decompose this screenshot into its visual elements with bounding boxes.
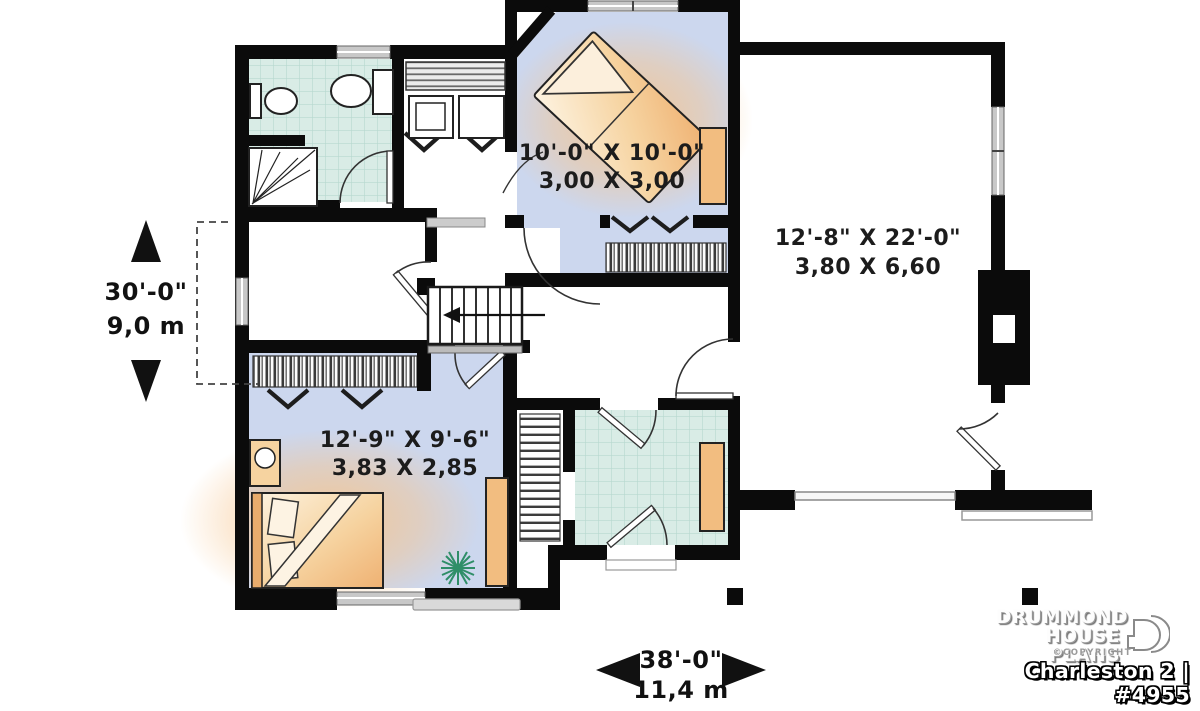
arrow-up-icon — [131, 220, 161, 262]
garage-dim-metric: 3,80 X 6,60 — [795, 255, 941, 280]
dryer-icon — [459, 96, 504, 138]
window-bedroom-bottom — [337, 592, 425, 605]
floor-plan-drawing: 10'-0" X 10'-0" 3,00 X 3,00 12'-8" X 22'… — [0, 0, 1200, 711]
front-stoop — [413, 599, 520, 610]
floor-plan-page: 10'-0" X 10'-0" 3,00 X 3,00 12'-8" X 22'… — [0, 0, 1200, 711]
corner-shower-icon — [249, 148, 317, 206]
width-imperial: 38'-0" — [640, 646, 723, 674]
brand-line1: DRUMMOND — [996, 608, 1120, 627]
arrow-right-icon — [722, 653, 766, 687]
copyright-label: ©COPYRIGHT — [1020, 648, 1132, 658]
overall-depth-dimension: 30'-0" 9,0 m — [105, 220, 188, 402]
foyer-bench-icon — [700, 443, 724, 531]
window-left-wall — [236, 278, 248, 325]
bedroom-bottom-dim-metric: 3,83 X 2,85 — [332, 456, 478, 481]
washer-icon — [409, 96, 453, 138]
bedroom-top-dim-metric: 3,00 X 3,00 — [539, 169, 685, 194]
door-house-garage — [676, 339, 733, 399]
entry-step — [606, 560, 676, 570]
plant-icon — [441, 551, 475, 585]
garage-stoop — [962, 511, 1092, 520]
window-bathroom-top — [337, 46, 390, 58]
overall-width-dimension: 38'-0" 11,4 m — [596, 646, 766, 704]
hall-header — [427, 218, 485, 227]
linen-shelves — [520, 414, 560, 541]
closet-shelf-bedroom-bottom — [253, 356, 417, 387]
window-garage — [992, 107, 1004, 195]
laundry-shelf — [406, 62, 505, 90]
stairs-rail — [428, 346, 522, 353]
bedroom-top-dim-imperial: 10'-0" X 10'-0" — [519, 141, 705, 166]
dresser-top-icon — [700, 128, 726, 204]
dresser-bottom-icon — [486, 478, 508, 586]
chimney-flue — [993, 315, 1015, 343]
closet-shelf-bedroom-top — [606, 243, 726, 272]
bed-bottom-icon — [252, 493, 383, 588]
plan-title: Charleston 2 | #4955 — [980, 659, 1190, 707]
toilet-icon — [250, 84, 297, 118]
width-metric: 11,4 m — [633, 676, 729, 704]
depth-imperial: 30'-0" — [105, 278, 188, 306]
garage-dim-imperial: 12'-8" X 22'-0" — [775, 226, 961, 251]
arrow-down-icon — [131, 360, 161, 402]
garage-door-panel — [795, 492, 955, 500]
bedroom-bottom-dim-imperial: 12'-9" X 9'-6" — [320, 428, 490, 453]
window-bedroom-top — [588, 1, 678, 11]
nightstand-icon — [250, 440, 280, 486]
depth-metric: 9,0 m — [107, 312, 185, 340]
